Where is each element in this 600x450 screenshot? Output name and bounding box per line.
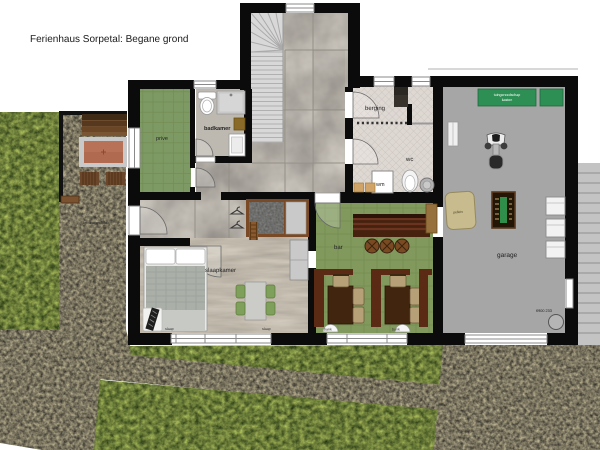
svg-text:pellets: pellets bbox=[453, 210, 463, 214]
svg-text:wm: wm bbox=[376, 182, 385, 188]
svg-text:slaap: slaap bbox=[165, 327, 174, 332]
svg-text:6900 233: 6900 233 bbox=[536, 309, 552, 314]
svg-text:bar: bar bbox=[334, 244, 343, 251]
svg-text:garage: garage bbox=[497, 251, 517, 259]
svg-text:slaapkamer: slaapkamer bbox=[205, 267, 236, 274]
svg-text:berging: berging bbox=[365, 105, 385, 112]
svg-text:bank: bank bbox=[392, 327, 400, 332]
svg-text:prive: prive bbox=[156, 136, 168, 142]
svg-text:Ferienhaus Sorpetal: Begane gr: Ferienhaus Sorpetal: Begane grond bbox=[30, 34, 188, 45]
svg-text:bank: bank bbox=[324, 327, 332, 332]
svg-text:badkamer: badkamer bbox=[204, 126, 231, 132]
svg-text:tuingereedschap: tuingereedschap bbox=[494, 93, 521, 98]
svg-text:terrasmeubilair: terrasmeubilair bbox=[83, 221, 110, 226]
svg-text:slaap: slaap bbox=[262, 327, 271, 332]
svg-text:kasten: kasten bbox=[502, 98, 513, 103]
svg-text:wc: wc bbox=[406, 156, 414, 163]
